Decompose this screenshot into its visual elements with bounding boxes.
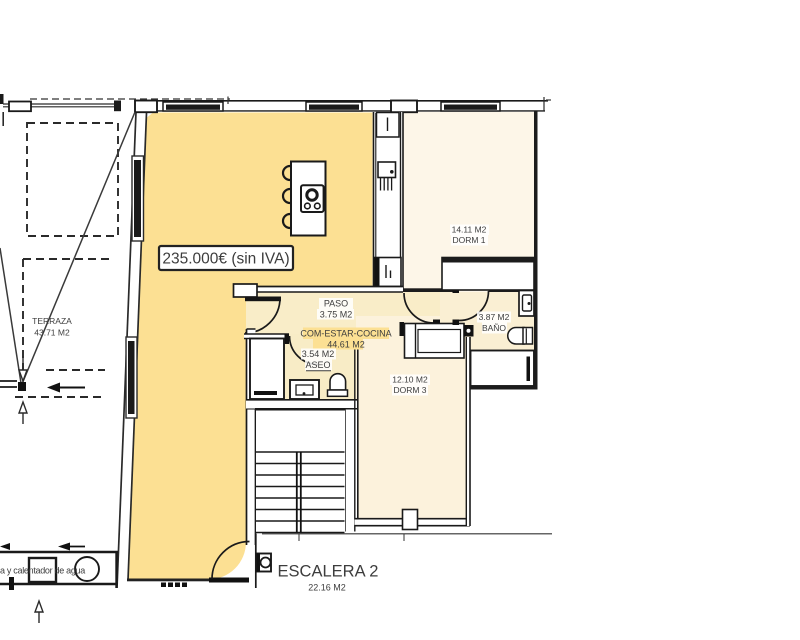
svg-text:PASO: PASO [324,299,348,309]
svg-text:DORM 3: DORM 3 [393,385,426,395]
svg-text:3.75 M2: 3.75 M2 [320,310,353,320]
svg-text:3.87 M2: 3.87 M2 [479,312,510,322]
svg-text:a y calentador de agua: a y calentador de agua [0,566,85,576]
svg-text:BAÑO: BAÑO [482,323,506,333]
svg-text:12.10 M2: 12.10 M2 [392,375,428,385]
svg-text:43.71 M2: 43.71 M2 [34,328,70,338]
svg-text:TERRAZA: TERRAZA [32,316,72,326]
svg-text:14.11 M2: 14.11 M2 [452,225,487,235]
svg-text:COM-ESTAR-COCINA: COM-ESTAR-COCINA [300,329,391,339]
svg-text:DORM 1: DORM 1 [452,235,485,245]
svg-text:235.000€ (sin IVA): 235.000€ (sin IVA) [162,251,289,268]
svg-text:3.54 M2: 3.54 M2 [302,349,335,359]
svg-text:ESCALERA 2: ESCALERA 2 [278,563,379,581]
svg-text:ASEO: ASEO [305,360,330,370]
svg-text:44.61 M2: 44.61 M2 [327,340,365,350]
svg-text:22.16 M2: 22.16 M2 [308,583,346,593]
